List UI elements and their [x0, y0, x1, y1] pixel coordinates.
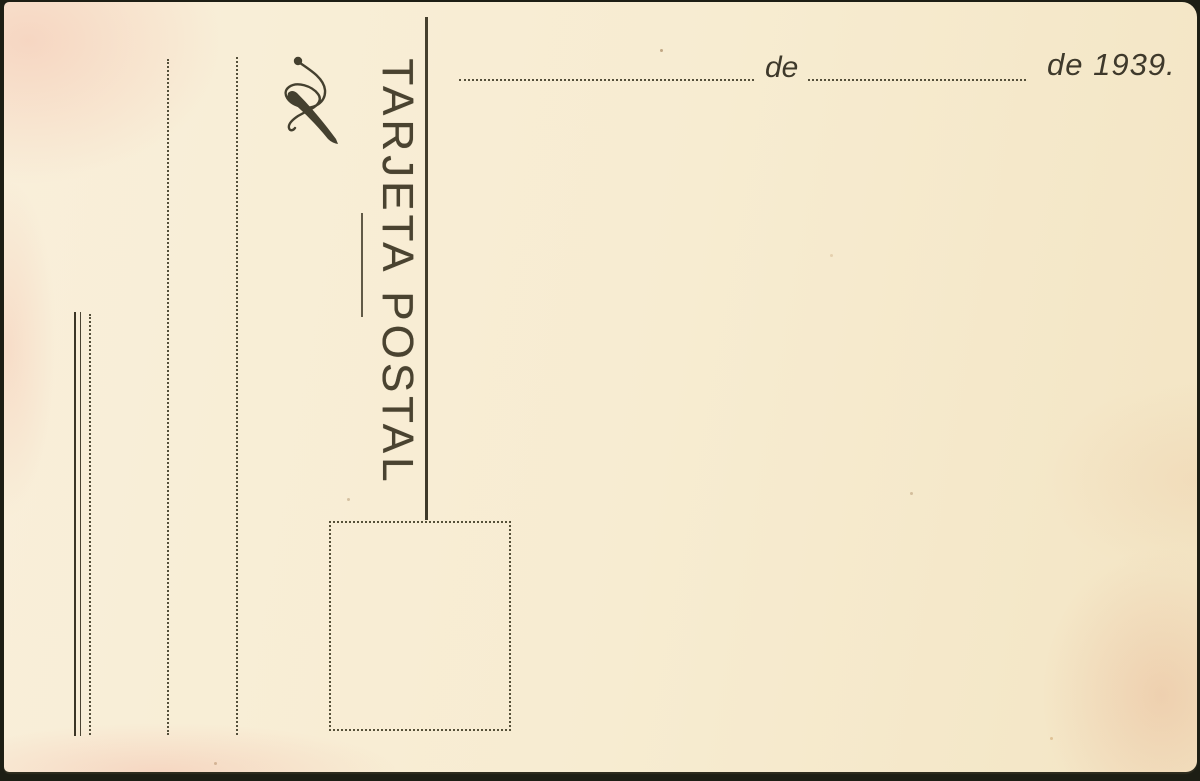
left-rule-dotted-1: [89, 314, 91, 735]
calligraphic-flourish-icon: [262, 46, 358, 154]
center-divider-line: [425, 17, 428, 520]
left-rule-solid-double: [74, 312, 81, 736]
postcard-title: TARJETA POSTAL: [372, 58, 422, 485]
date-label-year: de 1939.: [1047, 49, 1176, 80]
left-rule-dotted-2: [167, 59, 169, 735]
postcard-back: de de 1939. TARJETA POSTAL: [4, 2, 1197, 772]
date-label-de: de: [765, 53, 798, 83]
paper-speckles: [660, 49, 663, 52]
date-fill-line-2: [808, 79, 1026, 81]
date-fill-line-1: [459, 79, 754, 81]
left-rule-dotted-3: [236, 57, 238, 735]
stamp-box: [329, 521, 511, 731]
scan-background: de de 1939. TARJETA POSTAL: [0, 0, 1200, 781]
title-underline: [361, 213, 363, 317]
